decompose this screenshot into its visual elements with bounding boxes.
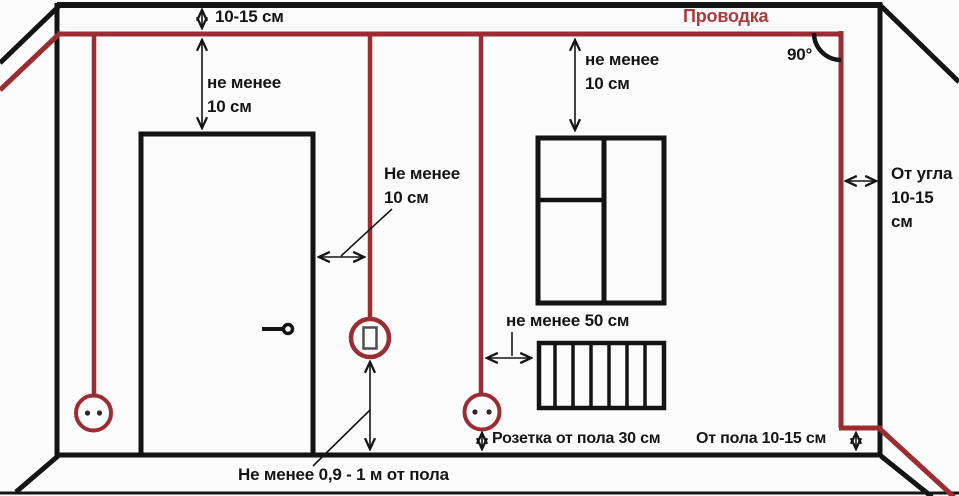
label-door-side-clearance: Не менее 10 см bbox=[384, 162, 460, 210]
angle-arc-icon bbox=[814, 33, 841, 60]
label-wiring-title: Проводка bbox=[683, 4, 768, 29]
radiator bbox=[539, 343, 664, 408]
leader-switch-height-label bbox=[313, 410, 370, 466]
middle-socket-icon bbox=[465, 395, 500, 430]
window bbox=[538, 138, 664, 303]
label-switch-height: Не менее 0,9 - 1 м от пола bbox=[238, 463, 449, 487]
door bbox=[141, 134, 313, 456]
label-wire-to-door-top: не менее 10 см bbox=[207, 71, 281, 119]
top-right-perspective-line bbox=[879, 4, 959, 82]
left-socket-contact-dot bbox=[85, 410, 90, 415]
wiring-left-corner-run bbox=[0, 35, 58, 90]
label-corner-offset: От угла 10-15 см bbox=[891, 162, 959, 233]
middle-socket-contact-dot bbox=[486, 409, 491, 414]
leader-door-side-label bbox=[341, 209, 392, 256]
label-window-top-clearance: не менее 10 см bbox=[585, 48, 659, 96]
middle-socket-circle bbox=[465, 395, 500, 430]
diagram-canvas bbox=[0, 0, 959, 496]
radiator-fins bbox=[555, 344, 645, 407]
left-socket-icon bbox=[76, 396, 111, 431]
label-floor-offset: От пола 10-15 см bbox=[696, 428, 826, 450]
door-handle-knob-icon bbox=[284, 325, 293, 334]
middle-socket-contact-dot bbox=[472, 409, 477, 414]
left-socket-circle bbox=[76, 396, 111, 431]
label-ceiling-gap: 10-15 см bbox=[215, 5, 284, 29]
switch-circle bbox=[351, 319, 389, 357]
top-left-perspective-line bbox=[0, 6, 59, 63]
label-angle-90: 90° bbox=[787, 43, 812, 67]
switch-rocker bbox=[364, 328, 377, 349]
door-outline bbox=[141, 134, 313, 456]
bottom-right-perspective-line bbox=[881, 456, 932, 496]
bottom-left-perspective-line bbox=[16, 456, 58, 492]
label-socket-height: Розетка от пола 30 см bbox=[492, 428, 660, 450]
switch-icon bbox=[351, 319, 389, 357]
wiring-layout-diagram: 10-15 см не менее 10 см Проводка не мене… bbox=[0, 0, 959, 496]
left-socket-contact-dot bbox=[97, 410, 102, 415]
label-radiator-clearance: не менее 50 см bbox=[506, 309, 629, 333]
window-frame bbox=[538, 138, 664, 303]
